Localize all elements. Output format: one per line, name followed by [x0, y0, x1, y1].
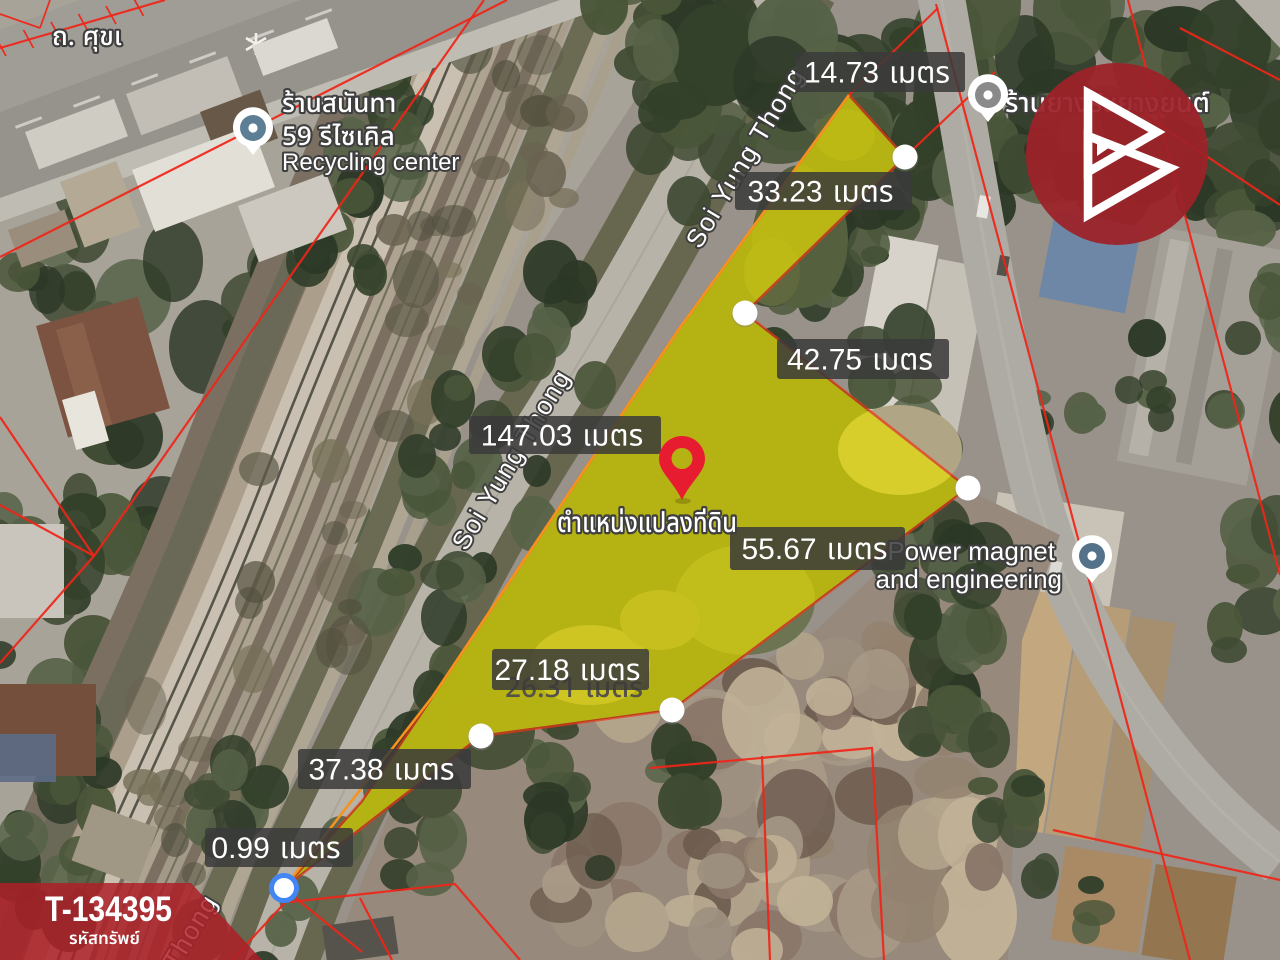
svg-text:37.38: 37.38	[309, 754, 384, 787]
svg-text:55.67: 55.67	[742, 533, 817, 566]
svg-text:147.03: 147.03	[481, 420, 573, 453]
svg-text:Recycling center: Recycling center	[282, 149, 459, 176]
svg-text:42.75: 42.75	[787, 344, 862, 377]
svg-text:0.99: 0.99	[211, 832, 269, 865]
svg-text:Power magnet: Power magnet	[887, 536, 1055, 566]
svg-text:14.73: 14.73	[804, 57, 879, 90]
svg-text:T-134395: T-134395	[45, 890, 172, 929]
svg-text:33.23: 33.23	[748, 176, 823, 209]
svg-text:27.18: 27.18	[495, 654, 570, 687]
